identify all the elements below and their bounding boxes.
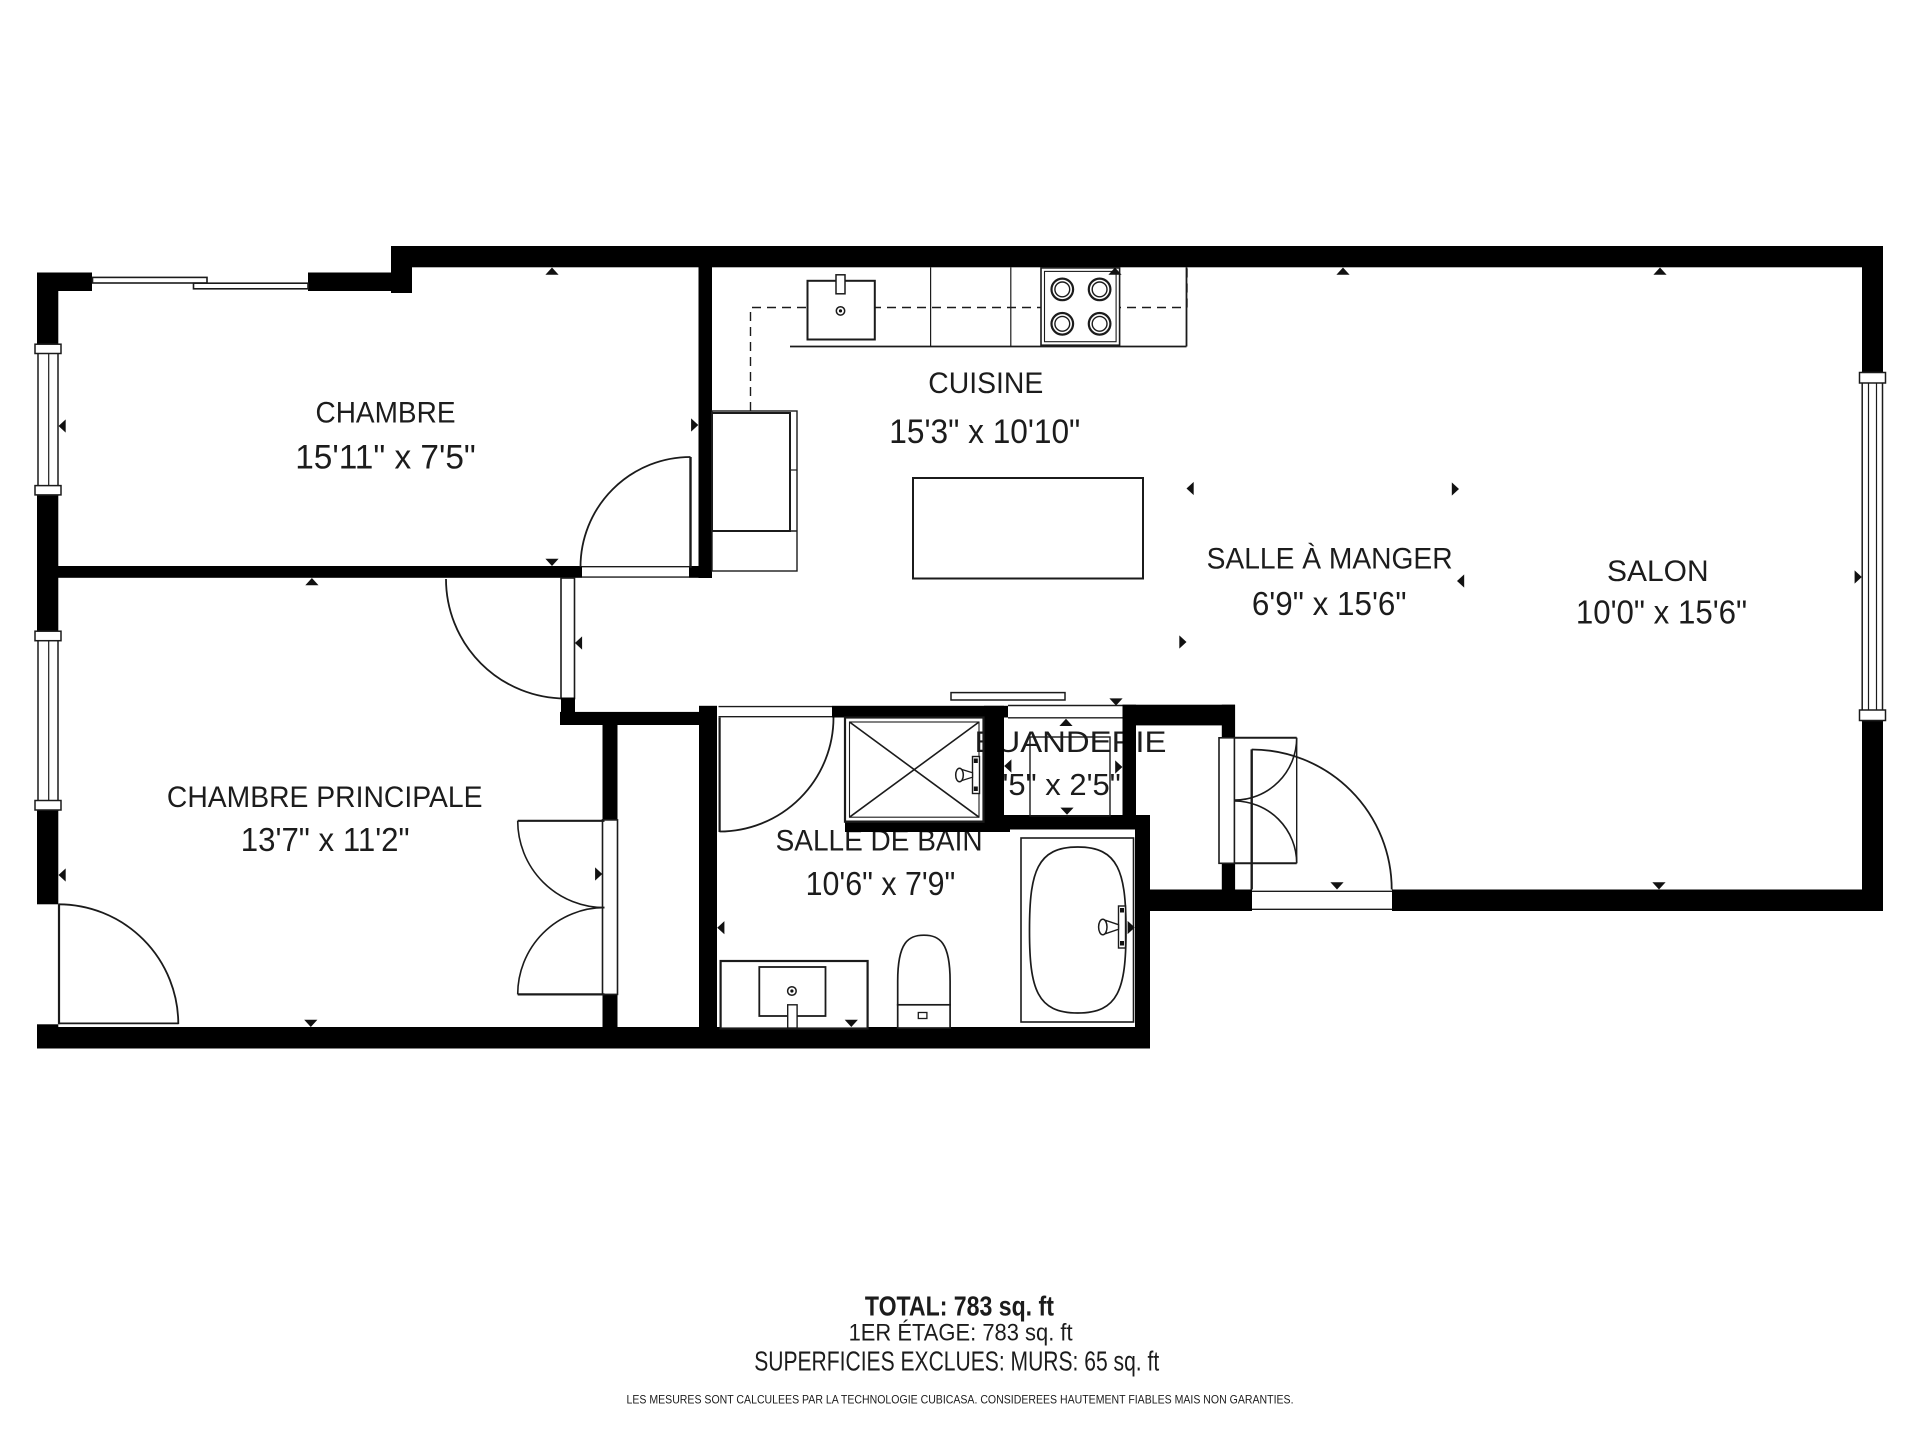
svg-text:10'6" x 7'9": 10'6" x 7'9" <box>806 865 956 902</box>
svg-text:CHAMBRE: CHAMBRE <box>316 397 456 430</box>
svg-text:SALON: SALON <box>1607 555 1709 588</box>
svg-text:4'5" x 2'5": 4'5" x 2'5" <box>985 767 1121 802</box>
svg-text:CHAMBRE PRINCIPALE: CHAMBRE PRINCIPALE <box>167 781 483 814</box>
svg-text:6'9" x 15'6": 6'9" x 15'6" <box>1252 585 1407 622</box>
svg-text:LES MESURES SONT CALCULEES PAR: LES MESURES SONT CALCULEES PAR LA TECHNO… <box>627 1393 1294 1407</box>
svg-text:TOTAL: 783 sq. ft: TOTAL: 783 sq. ft <box>865 1291 1054 1322</box>
svg-text:10'0" x 15'6": 10'0" x 15'6" <box>1576 594 1747 631</box>
svg-text:15'11" x 7'5": 15'11" x 7'5" <box>295 439 476 477</box>
svg-text:CUISINE: CUISINE <box>928 367 1043 400</box>
svg-text:SALLE À MANGER: SALLE À MANGER <box>1207 542 1453 575</box>
svg-text:13'7" x 11'2": 13'7" x 11'2" <box>241 821 410 858</box>
svg-text:15'3" x 10'10": 15'3" x 10'10" <box>889 413 1080 451</box>
svg-text:1ER ÉTAGE: 783 sq. ft: 1ER ÉTAGE: 783 sq. ft <box>849 1320 1073 1347</box>
svg-text:SUPERFICIES EXCLUES: MURS: 65: SUPERFICIES EXCLUES: MURS: 65 sq. ft <box>754 1346 1159 1377</box>
